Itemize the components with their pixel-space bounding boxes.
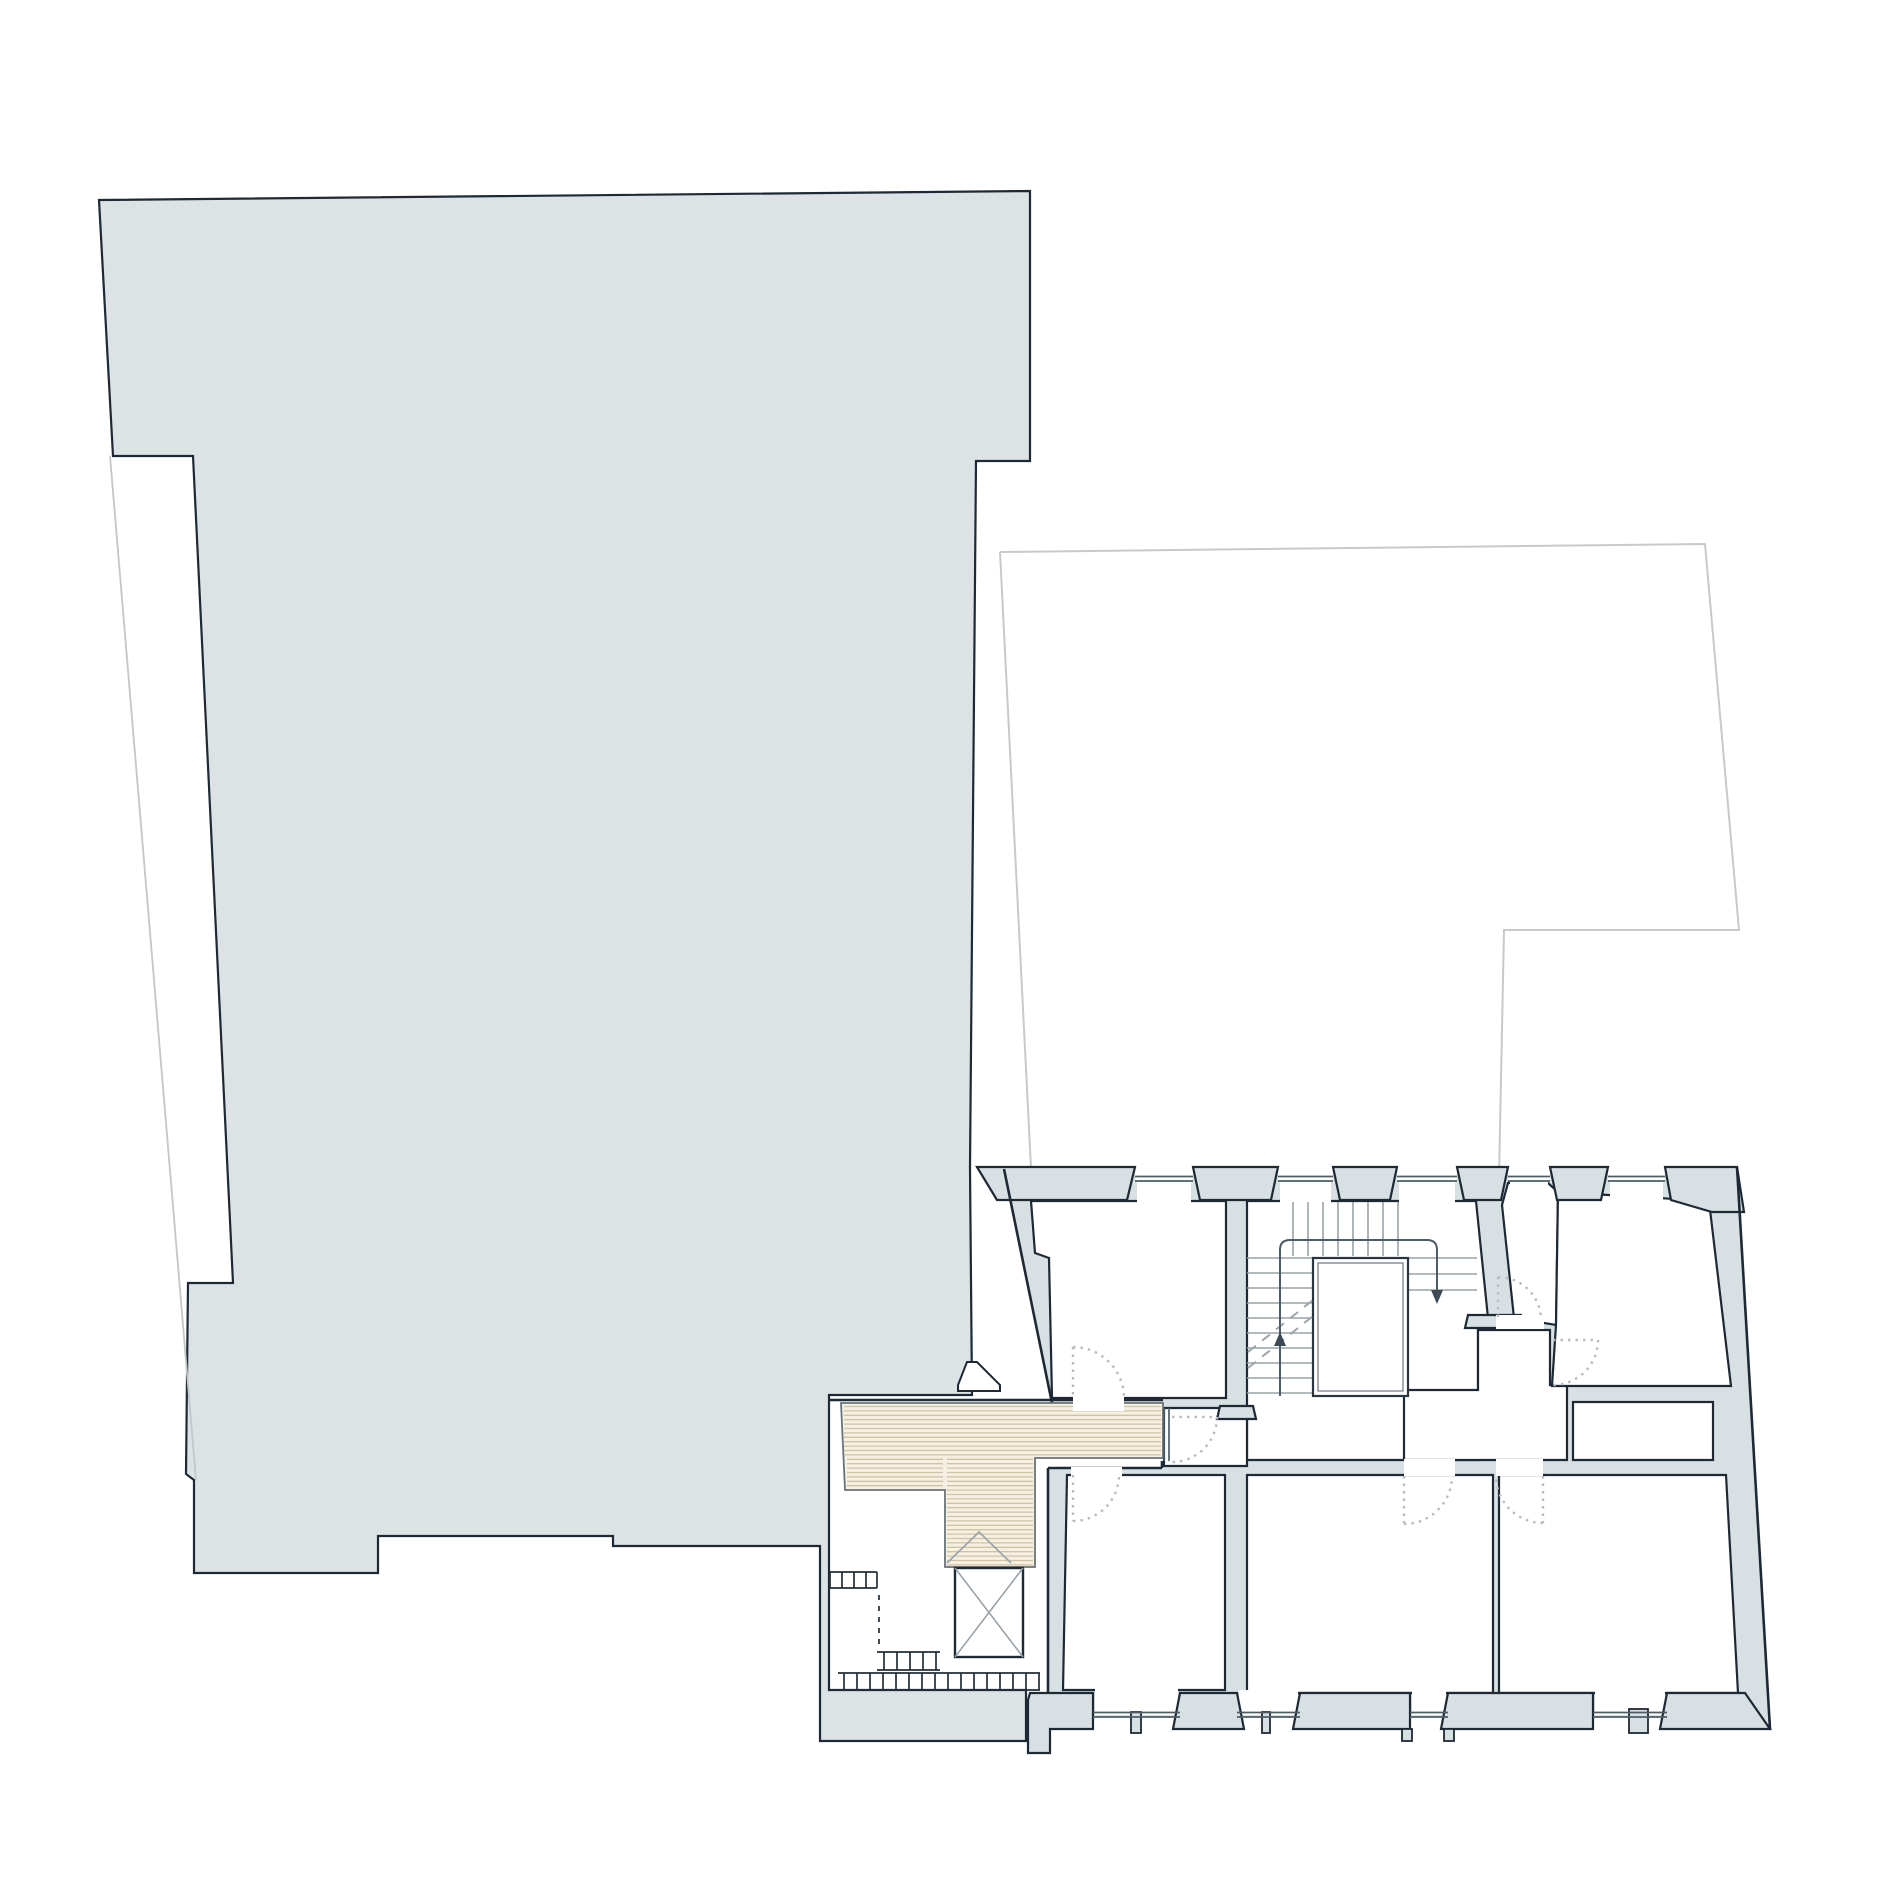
room-bottom-middle bbox=[1247, 1475, 1493, 1693]
window-jamb-foot-1 bbox=[1402, 1729, 1412, 1741]
pier-top-3 bbox=[1457, 1167, 1508, 1200]
room-top-left bbox=[1031, 1201, 1226, 1398]
pier-top-4 bbox=[1550, 1167, 1608, 1200]
deck-hatch-left-lobe bbox=[847, 1459, 943, 1485]
pier-bottom-2 bbox=[1293, 1693, 1410, 1729]
pier-bottom-3 bbox=[1441, 1693, 1593, 1729]
stairhall-wall-foot bbox=[1217, 1406, 1256, 1419]
window-mullion-1 bbox=[1131, 1712, 1141, 1733]
room-bottom-left bbox=[1063, 1475, 1225, 1690]
room-top-right bbox=[1552, 1192, 1731, 1386]
plan-drawing bbox=[0, 0, 1900, 1900]
floor-plan-canvas bbox=[0, 0, 1900, 1900]
pier-top-1 bbox=[1193, 1167, 1278, 1200]
stair-shaft-outer bbox=[1313, 1258, 1408, 1396]
pier-top-2 bbox=[1333, 1167, 1397, 1200]
window-mullion-2 bbox=[1262, 1712, 1270, 1733]
window-jamb-foot-2 bbox=[1444, 1729, 1454, 1741]
pier-top-corner-left bbox=[977, 1167, 1135, 1200]
pier-bottom-1 bbox=[1173, 1693, 1244, 1729]
room-bottom-right bbox=[1499, 1475, 1738, 1693]
room-narrow bbox=[1573, 1402, 1713, 1460]
